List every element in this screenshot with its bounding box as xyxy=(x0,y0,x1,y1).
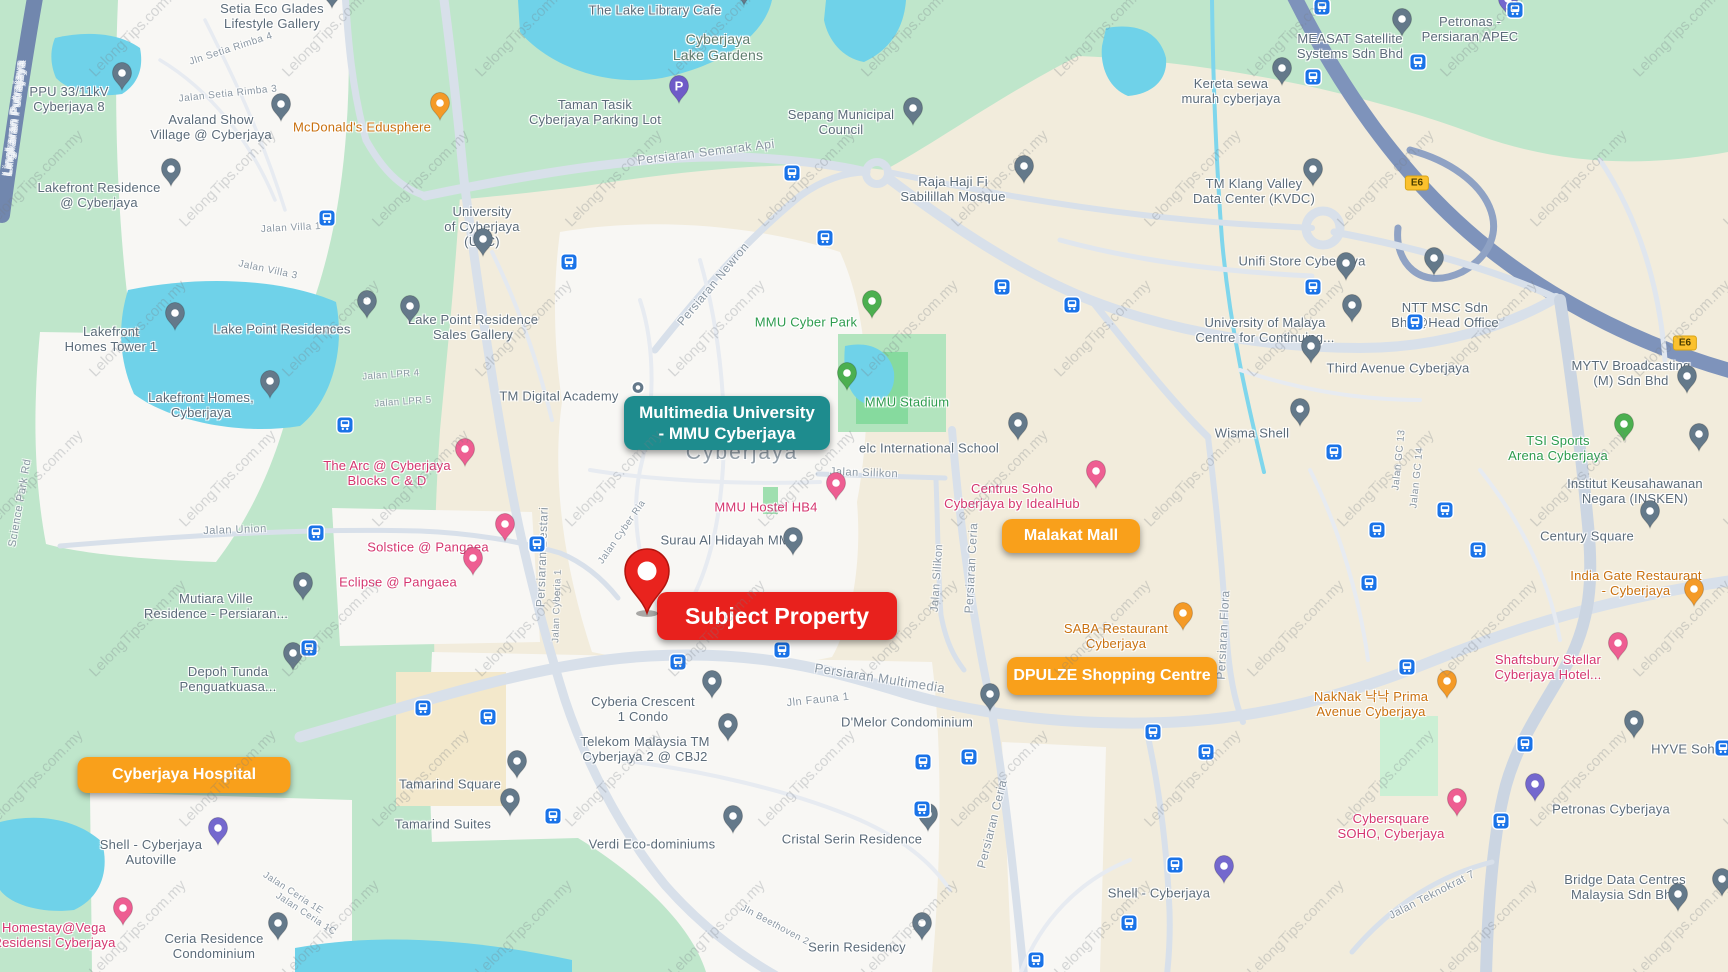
default-pin-icon[interactable] xyxy=(497,787,523,823)
default-pin-icon[interactable] xyxy=(265,911,291,947)
poi-label-lake-point-residences[interactable]: Lake Point Residences xyxy=(213,323,350,338)
default-pin-icon[interactable] xyxy=(699,669,725,705)
bus-stop-icon[interactable] xyxy=(915,802,930,817)
default-pin-icon[interactable] xyxy=(1637,499,1663,535)
poi-label-ppu-33-11kv[interactable]: PPU 33/11kVCyberjaya 8 xyxy=(29,85,108,115)
poi-label-the-lake-library-cafe[interactable]: The Lake Library Cafe xyxy=(589,4,722,19)
default-pin-icon[interactable] xyxy=(1621,709,1647,745)
poi-label-tm-digital-academy[interactable]: TM Digital Academy xyxy=(499,390,618,405)
default-pin-icon[interactable] xyxy=(900,96,926,132)
lodging-pin-icon[interactable] xyxy=(1444,787,1470,823)
bus-stop-icon[interactable] xyxy=(1122,916,1137,931)
badge-cyberjaya-hospital: Cyberjaya Hospital xyxy=(78,757,291,793)
gas-pin-icon[interactable] xyxy=(1522,772,1548,808)
poi-label-lake-point-residence[interactable]: Lake Point ResidenceSales Gallery xyxy=(408,313,538,343)
bus-stop-icon[interactable] xyxy=(1716,741,1728,756)
food-pin-icon[interactable] xyxy=(1681,577,1707,613)
poi-label-kereta-sewa[interactable]: Kereta sewamurah cyberjaya xyxy=(1181,77,1280,107)
default-pin-icon[interactable] xyxy=(1011,154,1037,190)
bus-stop-icon[interactable] xyxy=(775,643,790,658)
poi-label-mmu-cyber-park[interactable]: MMU Cyber Park xyxy=(755,316,857,331)
poi-label-the-arc-cyberjaya[interactable]: The Arc @ CyberjayaBlocks C & D xyxy=(323,459,451,489)
bus-stop-icon[interactable] xyxy=(671,655,686,670)
poi-label-mmu-stadium[interactable]: MMU Stadium xyxy=(865,396,950,411)
poi-label-institut-keusahawanan[interactable]: Institut KeusahawananNegara (INSKEN) xyxy=(1567,477,1703,507)
bus-stop-icon[interactable] xyxy=(338,418,353,433)
default-pin-icon[interactable] xyxy=(470,227,496,263)
parking-pin-icon[interactable]: P xyxy=(666,74,692,110)
bus-stop-icon[interactable] xyxy=(1411,55,1426,70)
bus-stop-icon[interactable] xyxy=(916,755,931,770)
poi-label-lakefront-homes[interactable]: Lakefront Homes,Cyberjaya xyxy=(148,391,254,421)
default-pin-icon[interactable] xyxy=(720,804,746,840)
default-pin-icon[interactable] xyxy=(1339,293,1365,329)
bus-stop-icon[interactable] xyxy=(1315,0,1330,15)
bus-stop-icon[interactable] xyxy=(1065,298,1080,313)
map-base xyxy=(0,0,1728,972)
default-pin-icon[interactable] xyxy=(1333,251,1359,287)
poi-label-surau-al-hidayah-mmu[interactable]: Surau Al Hidayah MMU xyxy=(660,534,799,549)
subject-property-pin-icon[interactable] xyxy=(619,545,675,624)
poi-label-cybersquare[interactable]: CybersquareSOHO, Cyberjaya xyxy=(1337,812,1444,842)
bus-stop-icon[interactable] xyxy=(562,255,577,270)
bus-stop-icon[interactable] xyxy=(1400,660,1415,675)
poi-label-tamarind-square[interactable]: Tamarind Square xyxy=(399,778,501,793)
poi-label-mytv-broadcasting[interactable]: MYTV Broadcasting(M) Sdn Bhd xyxy=(1571,359,1690,389)
default-pin-icon[interactable] xyxy=(731,0,757,12)
default-pin-icon[interactable] xyxy=(1298,334,1324,370)
poi-label-telekom-malaysia-tm[interactable]: Telekom Malaysia TMCyberjaya 2 @ CBJ2 xyxy=(580,735,709,765)
bus-stop-icon[interactable] xyxy=(309,526,324,541)
poi-label-setia-eco-glades[interactable]: Setia Eco GladesLifestyle Gallery xyxy=(220,2,324,32)
poi-label-saba-restaurant[interactable]: SABA RestaurantCyberjaya xyxy=(1064,622,1168,652)
lodging-pin-icon[interactable] xyxy=(1605,631,1631,667)
default-pin-icon[interactable] xyxy=(1665,882,1691,918)
bus-stop-icon[interactable] xyxy=(1518,737,1533,752)
default-pin-icon[interactable] xyxy=(268,92,294,128)
poi-label-avaland-show[interactable]: Avaland ShowVillage @ Cyberjaya xyxy=(150,113,272,143)
map-area xyxy=(1380,716,1438,796)
default-pin-icon[interactable] xyxy=(909,911,935,947)
bus-stop-icon[interactable] xyxy=(1494,814,1509,829)
route-shield-e6: E6 xyxy=(1405,176,1429,191)
default-pin-icon[interactable] xyxy=(158,157,184,193)
poi-label-serin-residency[interactable]: Serin Residency xyxy=(808,941,906,956)
default-pin-icon[interactable] xyxy=(1686,422,1712,458)
default-pin-icon[interactable] xyxy=(257,369,283,405)
poi-label-tsi-sports[interactable]: TSI SportsArena Cyberjaya xyxy=(1508,434,1608,464)
poi-label-third-avenue-cyberjaya[interactable]: Third Avenue Cyberjaya xyxy=(1327,362,1470,377)
svg-text:P: P xyxy=(675,79,684,94)
bus-stop-icon[interactable] xyxy=(1029,953,1044,968)
default-pin-icon[interactable] xyxy=(162,301,188,337)
default-pin-icon[interactable] xyxy=(1674,364,1700,400)
poi-label-mcdonald-s-edusphere[interactable]: McDonald's Edusphere xyxy=(293,121,431,136)
bus-stop-icon[interactable] xyxy=(546,809,561,824)
poi-label-shell-cyberjaya[interactable]: Shell - CyberjayaAutoville xyxy=(100,838,202,868)
poi-label-naknak-prima[interactable]: NakNak 낙낙 PrimaAvenue Cyberjaya xyxy=(1314,690,1428,720)
bus-stop-icon[interactable] xyxy=(1306,70,1321,85)
park-pin-icon[interactable] xyxy=(834,361,860,397)
bus-stop-icon[interactable] xyxy=(302,641,317,656)
park-pin-icon[interactable] xyxy=(859,289,885,325)
lodging-pin-icon[interactable] xyxy=(110,896,136,932)
bus-stop-icon[interactable] xyxy=(962,750,977,765)
poi-label-shaftsbury-stellar[interactable]: Shaftsbury StellarCyberjaya Hotel... xyxy=(1495,653,1602,683)
lodging-pin-icon[interactable] xyxy=(823,471,849,507)
food-pin-icon[interactable] xyxy=(427,91,453,127)
badge-dpulze-shopping-centre: DPULZE Shopping Centre xyxy=(1007,657,1217,695)
gas-pin-icon[interactable] xyxy=(1211,854,1237,890)
poi-label-mmu-hostel-hb4[interactable]: MMU Hostel HB4 xyxy=(714,501,817,516)
bus-stop-icon[interactable] xyxy=(995,280,1010,295)
poi-label-verdi-eco-dominiums[interactable]: Verdi Eco-dominiums xyxy=(589,838,716,853)
lodging-pin-icon[interactable] xyxy=(460,546,486,582)
map-canvas[interactable]: Lingkaran PutrajayaJln Setia Rimba 4Jala… xyxy=(0,0,1728,972)
poi-label-d-melor-condominium[interactable]: D'Melor Condominium xyxy=(841,716,973,731)
poi-label-petronas-cyberjaya[interactable]: Petronas Cyberjaya xyxy=(1552,803,1670,818)
bus-stop-icon[interactable] xyxy=(1508,3,1523,18)
default-pin-icon[interactable] xyxy=(1300,157,1326,193)
poi-label-depoh-tunda[interactable]: Depoh TundaPenguatkuasa... xyxy=(180,665,277,695)
bus-stop-icon[interactable] xyxy=(530,537,545,552)
badge-mmu-cyberjaya: Multimedia University- MMU Cyberjaya xyxy=(624,396,830,450)
lodging-pin-icon[interactable] xyxy=(492,512,518,548)
default-pin-icon[interactable] xyxy=(977,682,1003,718)
bus-stop-icon[interactable] xyxy=(1146,725,1161,740)
bus-stop-icon[interactable] xyxy=(1306,280,1321,295)
bus-stop-icon[interactable] xyxy=(1199,745,1214,760)
food-pin-icon[interactable] xyxy=(1434,669,1460,705)
default-pin-icon[interactable] xyxy=(290,571,316,607)
default-pin-icon[interactable] xyxy=(319,0,345,15)
gas-pin-icon[interactable] xyxy=(205,816,231,852)
poi-label-century-square[interactable]: Century Square xyxy=(1540,530,1634,545)
poi-label-cyberjaya[interactable]: CyberjayaLake Gardens xyxy=(673,32,763,64)
poi-label-lakefront[interactable]: LakefrontHomes Tower 1 xyxy=(65,325,158,355)
route-shield-e6: E6 xyxy=(1673,336,1697,351)
poi-label-elc-international-school[interactable]: elc International School xyxy=(859,442,999,457)
bus-stop-icon[interactable] xyxy=(1362,576,1377,591)
poi-label-sepang-municipal[interactable]: Sepang MunicipalCouncil xyxy=(788,108,895,138)
default-pin-icon[interactable] xyxy=(1421,246,1447,282)
bus-stop-icon[interactable] xyxy=(818,231,833,246)
poi-label-cristal-serin-residence[interactable]: Cristal Serin Residence xyxy=(782,833,922,848)
poi-label-homestay-vega[interactable]: Homestay@VegaResidensi Cyberjaya xyxy=(0,921,116,951)
default-pin-icon[interactable] xyxy=(715,712,741,748)
poi-label-taman-tasik[interactable]: Taman TasikCyberjaya Parking Lot xyxy=(529,98,661,128)
default-pin-icon[interactable] xyxy=(1287,397,1313,433)
bus-stop-icon[interactable] xyxy=(1408,315,1423,330)
poi-label-raja-haji-fi[interactable]: Raja Haji FiSabilillah Mosque xyxy=(900,175,1005,205)
bus-stop-icon[interactable] xyxy=(785,166,800,181)
default-pin-icon[interactable] xyxy=(1709,867,1728,903)
bus-stop-icon[interactable] xyxy=(1327,445,1342,460)
poi-label-centrus-soho[interactable]: Centrus SohoCyberjaya by IdealHub xyxy=(944,482,1080,512)
food-pin-icon[interactable] xyxy=(1170,601,1196,637)
bus-stop-icon[interactable] xyxy=(320,211,335,226)
badge-malakat-mall: Malakat Mall xyxy=(1002,519,1140,553)
bus-stop-icon[interactable] xyxy=(1168,858,1183,873)
bus-stop-icon[interactable] xyxy=(481,710,496,725)
poi-label-cyberia-crescent[interactable]: Cyberia Crescent1 Condo xyxy=(591,695,695,725)
bus-stop-icon[interactable] xyxy=(1471,543,1486,558)
bus-stop-icon[interactable] xyxy=(416,701,431,716)
road-label-jalan-union: Jalan Union xyxy=(203,523,267,537)
poi-label-lakefront-residence[interactable]: Lakefront Residence@ Cyberjaya xyxy=(37,181,160,211)
default-pin-icon[interactable] xyxy=(1389,7,1415,43)
default-pin-icon[interactable] xyxy=(109,61,135,97)
badge-subject-property: Subject Property xyxy=(657,592,897,640)
lodging-pin-icon[interactable] xyxy=(1083,459,1109,495)
default-pin-icon[interactable] xyxy=(504,749,530,785)
park-pin-icon[interactable] xyxy=(1611,412,1637,448)
poi-label-ceria-residence[interactable]: Ceria ResidenceCondominium xyxy=(164,932,263,962)
poi-label-wisma-shell[interactable]: Wisma Shell xyxy=(1215,427,1289,442)
lodging-pin-icon[interactable] xyxy=(452,437,478,473)
default-pin-icon[interactable] xyxy=(1005,411,1031,447)
poi-label-tm-klang-valley[interactable]: TM Klang ValleyData Center (KVDC) xyxy=(1193,177,1315,207)
poi-label-tamarind-suites[interactable]: Tamarind Suites xyxy=(395,818,491,833)
default-pin-icon[interactable] xyxy=(354,289,380,325)
default-pin-icon[interactable] xyxy=(1269,56,1295,92)
poi-label-shell-cyberjaya[interactable]: Shell - Cyberjaya xyxy=(1108,887,1210,902)
bus-stop-icon[interactable] xyxy=(1370,523,1385,538)
default-pin-icon[interactable] xyxy=(397,294,423,330)
default-pin-icon[interactable] xyxy=(780,526,806,562)
poi-label-measat-satellite[interactable]: MEASAT SatelliteSystems Sdn Bhd xyxy=(1297,32,1403,62)
poi-label-mutiara-ville[interactable]: Mutiara VilleResidence - Persiaran... xyxy=(144,592,288,622)
bus-stop-icon[interactable] xyxy=(1438,503,1453,518)
poi-label-eclipse-pangaea[interactable]: Eclipse @ Pangaea xyxy=(339,576,457,591)
